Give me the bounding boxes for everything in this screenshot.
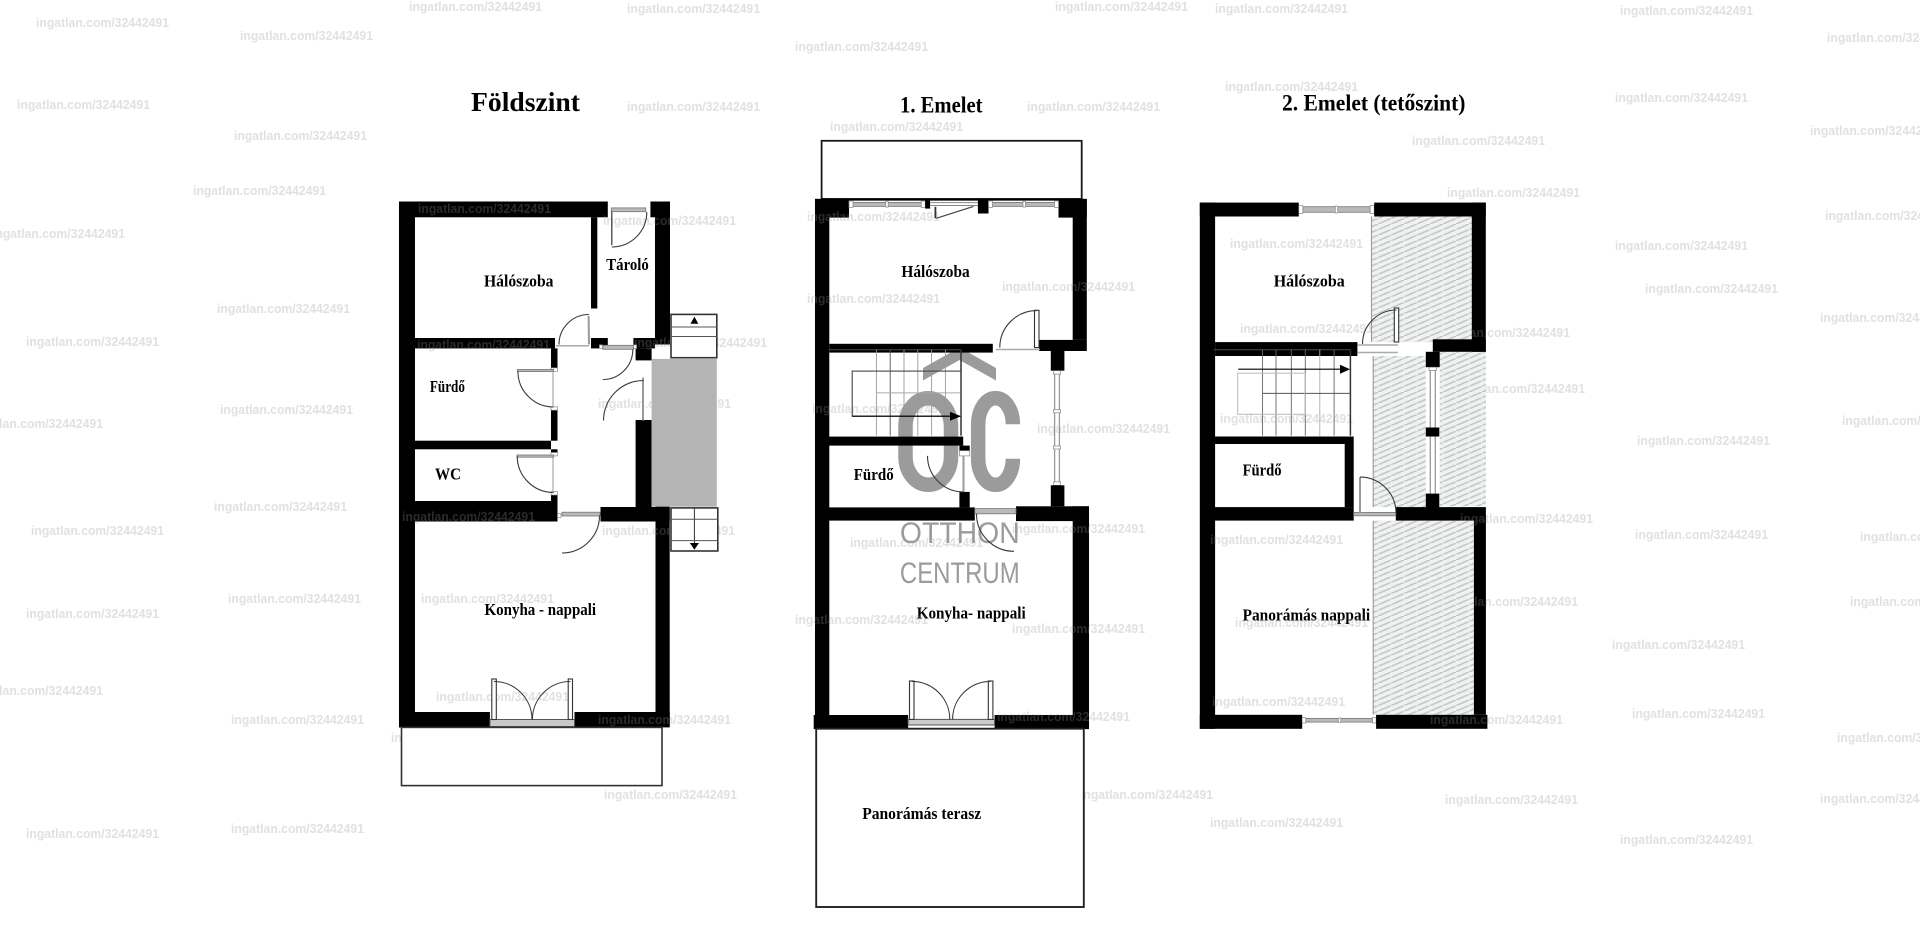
svg-text:ingatlan.com/32442491: ingatlan.com/32442491 bbox=[1615, 238, 1748, 253]
svg-text:ingatlan.com/32442491: ingatlan.com/32442491 bbox=[627, 99, 760, 114]
svg-text:ingatlan.com/32442491: ingatlan.com/32442491 bbox=[604, 787, 737, 802]
svg-text:ingatlan.com/32442491: ingatlan.com/32442491 bbox=[1012, 621, 1145, 636]
svg-text:ingatlan.com/32442491: ingatlan.com/32442491 bbox=[1412, 133, 1545, 148]
svg-text:ingatlan.com/32442491: ingatlan.com/32442491 bbox=[418, 201, 551, 216]
svg-text:ingatlan.com/32442491: ingatlan.com/32442491 bbox=[807, 209, 940, 224]
svg-text:ingatlan.com/32442491: ingatlan.com/32442491 bbox=[0, 226, 125, 241]
svg-text:ingatlan.com/32442491: ingatlan.com/32442491 bbox=[1212, 694, 1345, 709]
svg-text:ingatlan.com/32442491: ingatlan.com/32442491 bbox=[997, 709, 1130, 724]
svg-text:ingatlan.com/32442491: ingatlan.com/32442491 bbox=[1215, 1, 1348, 16]
svg-text:ingatlan.com/32442491: ingatlan.com/32442491 bbox=[1837, 730, 1920, 745]
svg-text:Tároló: Tároló bbox=[606, 255, 649, 274]
svg-text:ingatlan.com/32442491: ingatlan.com/32442491 bbox=[1645, 281, 1778, 296]
svg-text:ingatlan.com/32442491: ingatlan.com/32442491 bbox=[1860, 529, 1920, 544]
svg-text:ingatlan.com/32442491: ingatlan.com/32442491 bbox=[830, 119, 963, 134]
svg-text:ingatlan.com/32442491: ingatlan.com/32442491 bbox=[220, 402, 353, 417]
svg-text:ingatlan.com/32442491: ingatlan.com/32442491 bbox=[1637, 433, 1770, 448]
svg-text:Fürdő: Fürdő bbox=[1243, 461, 1282, 480]
svg-text:ingatlan.com/32442491: ingatlan.com/32442491 bbox=[627, 1, 760, 16]
svg-text:ingatlan.com/32442491: ingatlan.com/32442491 bbox=[850, 535, 983, 550]
svg-text:ingatlan.com/32442491: ingatlan.com/32442491 bbox=[1437, 325, 1570, 340]
svg-text:Fürdő: Fürdő bbox=[854, 465, 894, 484]
svg-text:1. Emelet: 1. Emelet bbox=[900, 93, 983, 118]
svg-text:ingatlan.com/32442491: ingatlan.com/32442491 bbox=[1460, 511, 1593, 526]
svg-text:ingatlan.com/32442491: ingatlan.com/32442491 bbox=[417, 337, 550, 352]
svg-text:ingatlan.com/32442491: ingatlan.com/32442491 bbox=[0, 416, 103, 431]
svg-text:Konyha- nappali: Konyha- nappali bbox=[917, 604, 1026, 623]
svg-text:ingatlan.com/32442491: ingatlan.com/32442491 bbox=[1430, 712, 1563, 727]
svg-text:ingatlan.com/32442491: ingatlan.com/32442491 bbox=[1220, 411, 1353, 426]
svg-text:ingatlan.com/32442491: ingatlan.com/32442491 bbox=[1230, 236, 1363, 251]
svg-text:ingatlan.com/32442491: ingatlan.com/32442491 bbox=[1012, 521, 1145, 536]
svg-text:ingatlan.com/32442491: ingatlan.com/32442491 bbox=[231, 712, 364, 727]
svg-text:ingatlan.com/32442491: ingatlan.com/32442491 bbox=[602, 523, 735, 538]
svg-text:ingatlan.com/32442491: ingatlan.com/32442491 bbox=[402, 509, 535, 524]
svg-text:ingatlan.com/32442491: ingatlan.com/32442491 bbox=[1615, 90, 1748, 105]
svg-text:ingatlan.com/32442491: ingatlan.com/32442491 bbox=[231, 821, 364, 836]
svg-text:ingatlan.com/32442491: ingatlan.com/32442491 bbox=[234, 128, 367, 143]
svg-text:ingatlan.com/32442491: ingatlan.com/32442491 bbox=[795, 612, 928, 627]
svg-text:Hálószoba: Hálószoba bbox=[1274, 271, 1345, 290]
svg-text:ingatlan.com/32442491: ingatlan.com/32442491 bbox=[1002, 279, 1135, 294]
svg-text:ingatlan.com/32442491: ingatlan.com/32442491 bbox=[36, 15, 169, 30]
svg-text:ingatlan.com/32442491: ingatlan.com/32442491 bbox=[0, 683, 103, 698]
svg-text:ingatlan.com/32442491: ingatlan.com/32442491 bbox=[1037, 421, 1170, 436]
svg-text:ingatlan.com/32442491: ingatlan.com/32442491 bbox=[1620, 832, 1753, 847]
svg-text:ingatlan.com/32442491: ingatlan.com/32442491 bbox=[1842, 413, 1920, 428]
svg-text:ingatlan.com/32442491: ingatlan.com/32442491 bbox=[1850, 594, 1920, 609]
svg-text:ingatlan.com/32442491: ingatlan.com/32442491 bbox=[217, 301, 350, 316]
svg-text:ingatlan.com/32442491: ingatlan.com/32442491 bbox=[1452, 381, 1585, 396]
svg-text:ingatlan.com/32442491: ingatlan.com/32442491 bbox=[17, 97, 150, 112]
svg-text:ingatlan.com/32442491: ingatlan.com/32442491 bbox=[1632, 706, 1765, 721]
svg-text:ingatlan.com/32442491: ingatlan.com/32442491 bbox=[228, 591, 361, 606]
svg-text:ingatlan.com/32442491: ingatlan.com/32442491 bbox=[436, 689, 569, 704]
svg-text:ingatlan.com/32442491: ingatlan.com/32442491 bbox=[1445, 792, 1578, 807]
svg-text:ingatlan.com/32442491: ingatlan.com/32442491 bbox=[1447, 185, 1580, 200]
svg-text:ingatlan.com/32442491: ingatlan.com/32442491 bbox=[1820, 310, 1920, 325]
svg-text:ingatlan.com/32442491: ingatlan.com/32442491 bbox=[1225, 79, 1358, 94]
svg-text:ingatlan.com/32442491: ingatlan.com/32442491 bbox=[1240, 321, 1373, 336]
svg-text:WC: WC bbox=[435, 464, 461, 483]
svg-text:ingatlan.com/32442491: ingatlan.com/32442491 bbox=[1027, 99, 1160, 114]
svg-text:ingatlan.com/32442491: ingatlan.com/32442491 bbox=[795, 39, 928, 54]
svg-text:ingatlan.com/32442491: ingatlan.com/32442491 bbox=[409, 0, 542, 14]
svg-text:ingatlan.com/32442491: ingatlan.com/32442491 bbox=[1210, 815, 1343, 830]
svg-text:ingatlan.com/32442491: ingatlan.com/32442491 bbox=[1635, 527, 1768, 542]
svg-text:ingatlan.com/32442491: ingatlan.com/32442491 bbox=[1210, 532, 1343, 547]
svg-text:ingatlan.com/32442491: ingatlan.com/32442491 bbox=[634, 335, 767, 350]
svg-text:Hálószoba: Hálószoba bbox=[484, 272, 554, 291]
svg-text:ingatlan.com/32442491: ingatlan.com/32442491 bbox=[603, 213, 736, 228]
svg-text:ingatlan.com/32442491: ingatlan.com/32442491 bbox=[26, 334, 159, 349]
svg-text:ingatlan.com/32442491: ingatlan.com/32442491 bbox=[1080, 787, 1213, 802]
svg-text:ingatlan.com/32442491: ingatlan.com/32442491 bbox=[193, 183, 326, 198]
svg-text:ingatlan.com/32442491: ingatlan.com/32442491 bbox=[1055, 0, 1188, 14]
svg-text:ingatlan.com/32442491: ingatlan.com/32442491 bbox=[1235, 615, 1368, 630]
svg-text:Hálószoba: Hálószoba bbox=[901, 262, 970, 281]
svg-text:ingatlan.com/32442491: ingatlan.com/32442491 bbox=[1612, 637, 1745, 652]
svg-text:ingatlan.com/32442491: ingatlan.com/32442491 bbox=[1445, 594, 1578, 609]
svg-text:ingatlan.com/32442491: ingatlan.com/32442491 bbox=[240, 28, 373, 43]
svg-text:ingatlan.com/32442491: ingatlan.com/32442491 bbox=[31, 523, 164, 538]
svg-text:ingatlan.com/32442491: ingatlan.com/32442491 bbox=[391, 730, 524, 745]
svg-text:ingatlan.com/32442491: ingatlan.com/32442491 bbox=[1825, 208, 1920, 223]
svg-text:ingatlan.com/32442491: ingatlan.com/32442491 bbox=[214, 499, 347, 514]
svg-text:CENTRUM: CENTRUM bbox=[900, 557, 1020, 590]
svg-text:ingatlan.com/32442491: ingatlan.com/32442491 bbox=[421, 591, 554, 606]
svg-text:ingatlan.com/32442491: ingatlan.com/32442491 bbox=[807, 291, 940, 306]
svg-text:ingatlan.com/32442491: ingatlan.com/32442491 bbox=[1810, 123, 1920, 138]
svg-text:ingatlan.com/32442491: ingatlan.com/32442491 bbox=[598, 712, 731, 727]
svg-text:Fürdő: Fürdő bbox=[430, 377, 465, 396]
svg-text:2. Emelet (tetőszint): 2. Emelet (tetőszint) bbox=[1282, 91, 1465, 116]
svg-text:Földszint: Földszint bbox=[471, 87, 580, 117]
svg-text:ingatlan.com/32442491: ingatlan.com/32442491 bbox=[1620, 3, 1753, 18]
svg-text:ingatlan.com/32442491: ingatlan.com/32442491 bbox=[598, 396, 731, 411]
svg-text:Panorámás terasz: Panorámás terasz bbox=[862, 804, 981, 823]
svg-text:ingatlan.com/32442491: ingatlan.com/32442491 bbox=[26, 606, 159, 621]
svg-text:ingatlan.com/32442491: ingatlan.com/32442491 bbox=[1827, 30, 1920, 45]
svg-text:ingatlan.com/32442491: ingatlan.com/32442491 bbox=[1820, 791, 1920, 806]
svg-text:ingatlan.com/32442491: ingatlan.com/32442491 bbox=[812, 401, 945, 416]
svg-text:ingatlan.com/32442491: ingatlan.com/32442491 bbox=[26, 826, 159, 841]
